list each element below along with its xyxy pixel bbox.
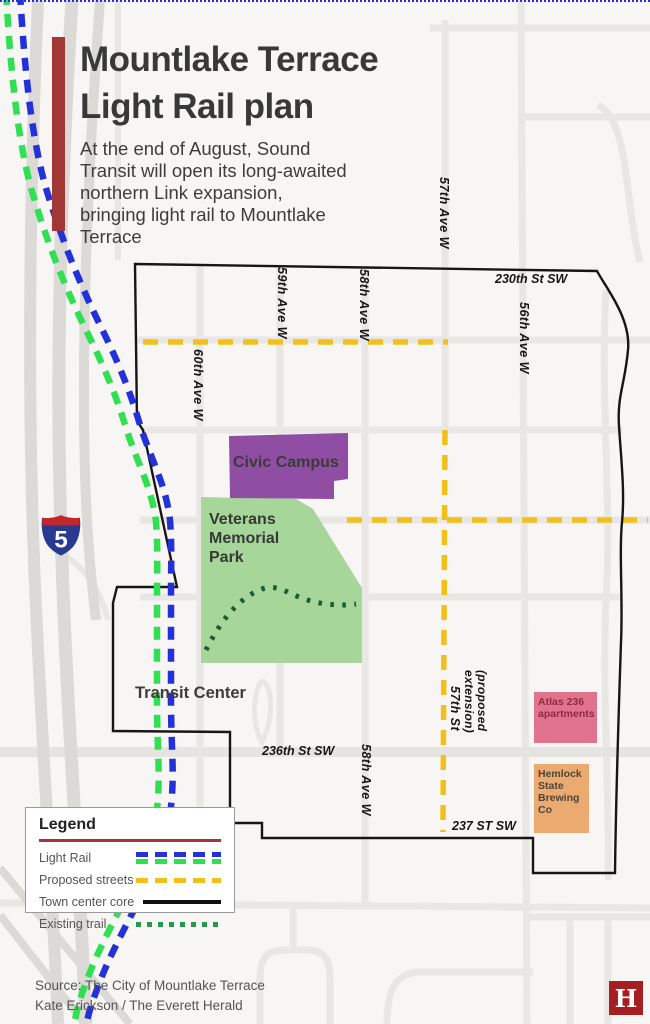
legend-title: Legend <box>39 816 221 834</box>
legend-label: Proposed streets <box>39 873 134 887</box>
everett-herald-logo: H <box>609 981 643 1015</box>
legend-item-light-rail: Light Rail <box>39 851 221 865</box>
label-proposed-extension: (proposed extension) <box>462 670 488 744</box>
top-border <box>0 0 650 2</box>
title-line2: Light Rail plan <box>80 83 378 130</box>
label-56th-ave: 56th Ave W <box>517 302 531 374</box>
existing-trail-swatch <box>136 922 221 927</box>
legend-label: Light Rail <box>39 851 91 865</box>
label-58th-ave-top: 58th Ave W <box>357 269 371 341</box>
title-accent-bar <box>52 37 65 231</box>
legend-item-proposed-streets: Proposed streets <box>39 873 221 887</box>
interstate-5-shield-icon: 5 <box>40 514 82 556</box>
subtitle-line: At the end of August, Sound <box>80 138 347 160</box>
legend-rule <box>39 839 221 842</box>
subtitle-line: northern Link expansion, <box>80 182 347 204</box>
subtitle-line: bringing light rail to Mountlake <box>80 204 347 226</box>
proposed-streets-swatch <box>136 878 221 883</box>
source-credit: Source: The City of Mountlake Terrace Ka… <box>35 976 265 1017</box>
label-civic-campus: Civic Campus <box>233 454 339 472</box>
interstate-number: 5 <box>54 527 68 554</box>
hemlock-brewing-box: Hemlock State Brewing Co <box>534 764 589 833</box>
subtitle-line: Terrace <box>80 226 347 248</box>
legend: Legend Light Rail Proposed streets Town … <box>25 807 235 913</box>
label-230th-st: 230th St SW <box>495 272 567 286</box>
light-rail-swatch <box>136 852 221 864</box>
label-236th-st: 236th St SW <box>262 744 334 758</box>
atlas-236-apartments-box: Atlas 236 apartments <box>534 692 597 743</box>
legend-label: Existing trail <box>39 917 106 931</box>
page-title: Mountlake Terrace Light Rail plan <box>80 36 378 130</box>
label-59th-ave: 59th Ave W <box>275 267 289 339</box>
label-veterans-park: Veterans Memorial Park <box>209 511 304 568</box>
subtitle: At the end of August, Sound Transit will… <box>80 138 347 248</box>
subtitle-line: Transit will open its long-awaited <box>80 160 347 182</box>
legend-label: Town center core <box>39 895 134 909</box>
legend-item-existing-trail: Existing trail <box>39 917 221 931</box>
source-line1: Source: The City of Mountlake Terrace <box>35 976 265 996</box>
label-57th-ave: 57th Ave W <box>437 177 451 249</box>
label-transit-center: Transit Center <box>135 684 246 703</box>
source-line2: Kate Erickson / The Everett Herald <box>35 996 265 1016</box>
title-line1: Mountlake Terrace <box>80 36 378 83</box>
label-proposed-57th-st: 57th St <box>448 686 462 731</box>
infographic-canvas: Mountlake Terrace Light Rail plan At the… <box>0 0 650 1024</box>
legend-item-town-center-core: Town center core <box>39 895 221 909</box>
label-60th-ave: 60th Ave W <box>191 349 205 421</box>
label-58th-ave-bottom: 58th Ave W <box>359 744 373 816</box>
label-237-st: 237 ST SW <box>452 819 516 833</box>
town-center-core-swatch <box>143 900 221 904</box>
